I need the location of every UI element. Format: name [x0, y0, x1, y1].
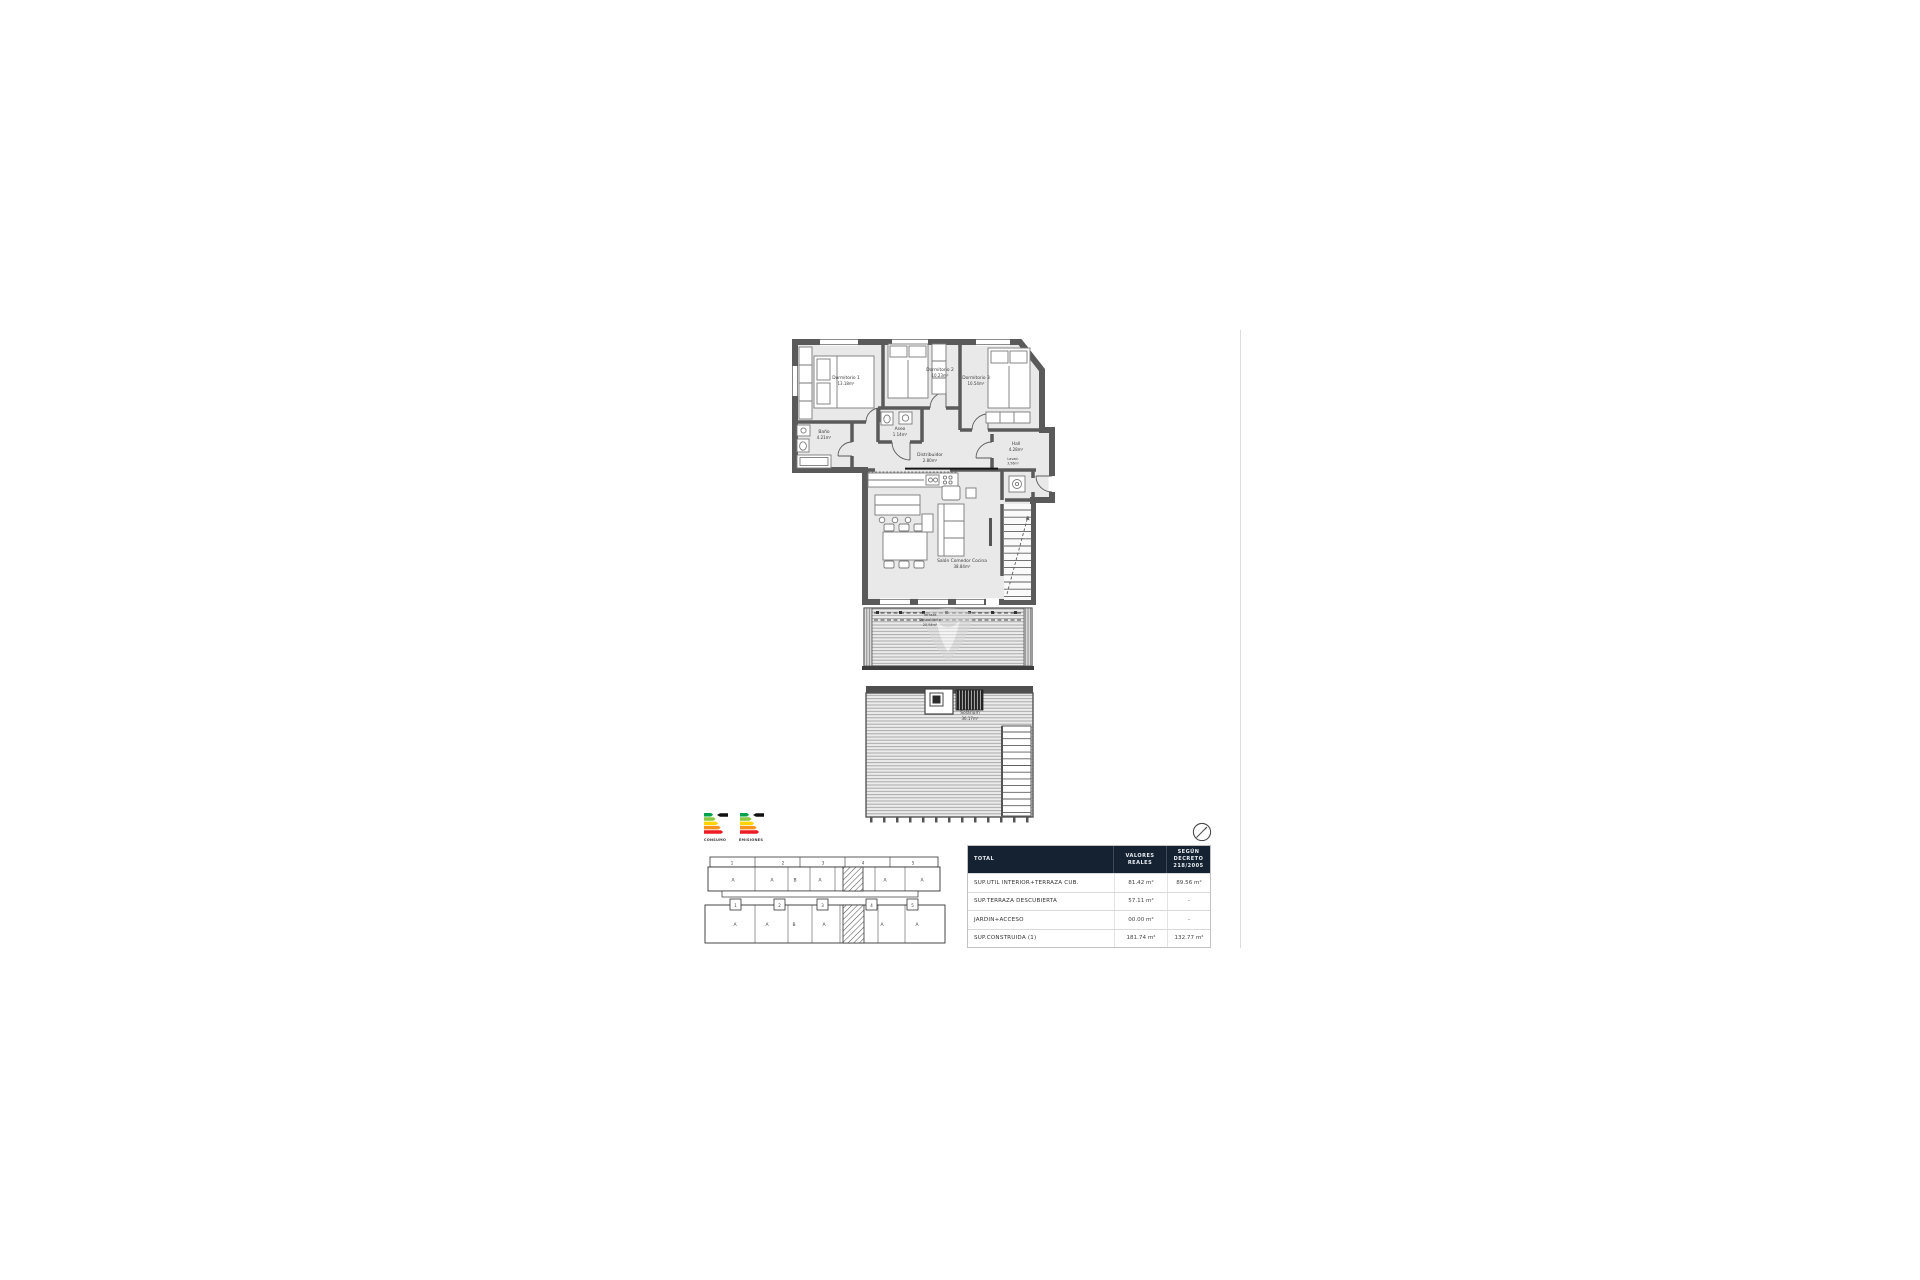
- portal-number: 1: [734, 903, 737, 908]
- table-header-row: TOTAL VALORES REALES SEGÚN DECRETO 218/2…: [968, 846, 1210, 873]
- floor-plan-drawing: Dormitorio 1 13.18m² Dormitorio 2 10.23m…: [780, 330, 1090, 835]
- row-label: SUP.TERRAZA DESCUBIERTA: [968, 898, 1114, 904]
- portal-number: 1: [731, 861, 734, 866]
- row-value-decreto: 132.77 m²: [1167, 930, 1210, 948]
- building-key-plan: 1 2 3 4 5 A A B A A A: [700, 853, 950, 948]
- portal-number: 2: [782, 861, 785, 866]
- table-row: JARDIN+ACCESO 00.00 m² -: [968, 910, 1210, 929]
- room-area-bano: 4.21m²: [817, 435, 832, 440]
- solarium: [866, 686, 1033, 823]
- row-value-decreto: 89.56 m²: [1167, 874, 1210, 892]
- room-label-terraza-2: Descubierta: [919, 618, 941, 622]
- room-area-dormitorio-2: 10.23m²: [932, 373, 949, 378]
- emisiones-label: EMISIONES: [739, 838, 763, 842]
- unit-letter: B: [793, 878, 796, 884]
- portal-number: 2: [778, 903, 781, 908]
- unit-letter: B: [792, 922, 795, 928]
- rating-arrow: [753, 813, 764, 816]
- page-divider-line: [1240, 330, 1241, 948]
- surface-areas-table: TOTAL VALORES REALES SEGÚN DECRETO 218/2…: [967, 845, 1211, 948]
- room-area-terraza: 20.94m²: [923, 623, 938, 627]
- energy-consumo-icon: CONSUMO: [704, 813, 728, 842]
- portal-number: 5: [912, 861, 915, 866]
- header-valores-reales: VALORES REALES: [1114, 846, 1167, 873]
- plan-sheet-page: Dormitorio 1 13.18m² Dormitorio 2 10.23m…: [0, 0, 1920, 1280]
- room-area-solarium: 36.17m²: [962, 716, 979, 721]
- row-value-real: 81.42 m²: [1114, 874, 1167, 892]
- key-plan-block-a: 1 2 3 4 5 A A B A A A: [708, 857, 940, 897]
- header-total: TOTAL: [968, 846, 1114, 873]
- row-label: JARDIN+ACCESO: [968, 917, 1114, 923]
- row-value-real: 181.74 m²: [1114, 930, 1167, 948]
- highlighted-unit-block-b: [843, 905, 864, 943]
- row-label: SUP.CONSTRUIDA (1): [968, 935, 1114, 941]
- compass-icon: [1190, 820, 1214, 844]
- table-row: SUP.UTIL INTERIOR+TERRAZA CUB. 81.42 m² …: [968, 873, 1210, 892]
- row-label: SUP.UTIL INTERIOR+TERRAZA CUB.: [968, 880, 1114, 886]
- row-value-decreto: -: [1167, 911, 1210, 929]
- room-area-hall: 4.28m²: [1009, 447, 1024, 452]
- highlighted-unit-block-a: [843, 867, 863, 891]
- room-label-terraza: Terraza: [923, 613, 937, 617]
- portal-number: 4: [862, 861, 865, 866]
- header-segun-decreto: SEGÚN DECRETO 218/2005: [1167, 846, 1210, 873]
- table-row: SUP.TERRAZA DESCUBIERTA 57.11 m² -: [968, 892, 1210, 911]
- rating-arrow: [717, 813, 728, 816]
- room-area-distribuidor: 2.80m²: [923, 458, 938, 463]
- room-label-lavadero: Lavad.: [1007, 457, 1018, 461]
- energy-emisiones-icon: EMISIONES: [739, 813, 764, 842]
- portal-number: 3: [821, 903, 824, 908]
- portal-number: 3: [822, 861, 825, 866]
- room-area-dormitorio-1: 13.18m²: [838, 381, 855, 386]
- portal-number: 4: [870, 903, 873, 908]
- row-value-real: 00.00 m²: [1114, 911, 1167, 929]
- room-area-dormitorio-3: 10.54m²: [968, 381, 985, 386]
- table-row: SUP.CONSTRUIDA (1) 181.74 m² 132.77 m²: [968, 929, 1210, 948]
- room-label-salon: Salón Comedor Cocina: [937, 557, 987, 564]
- key-plan-block-b: 1 2 3 4 5 A A B A A A: [705, 899, 945, 943]
- terrace: [862, 608, 1034, 670]
- room-area-salon: 38.84m²: [954, 564, 971, 569]
- row-value-decreto: -: [1167, 893, 1210, 911]
- portal-number: 5: [911, 903, 914, 908]
- row-value-real: 57.11 m²: [1114, 893, 1167, 911]
- room-area-aseo: 1.14m²: [893, 432, 908, 437]
- room-area-lavadero: 3.56m²: [1007, 462, 1019, 466]
- consumo-label: CONSUMO: [704, 838, 726, 842]
- room-label-solarium: Solárium: [960, 709, 979, 716]
- energy-rating-icons: CONSUMO EMISIONES: [698, 810, 778, 852]
